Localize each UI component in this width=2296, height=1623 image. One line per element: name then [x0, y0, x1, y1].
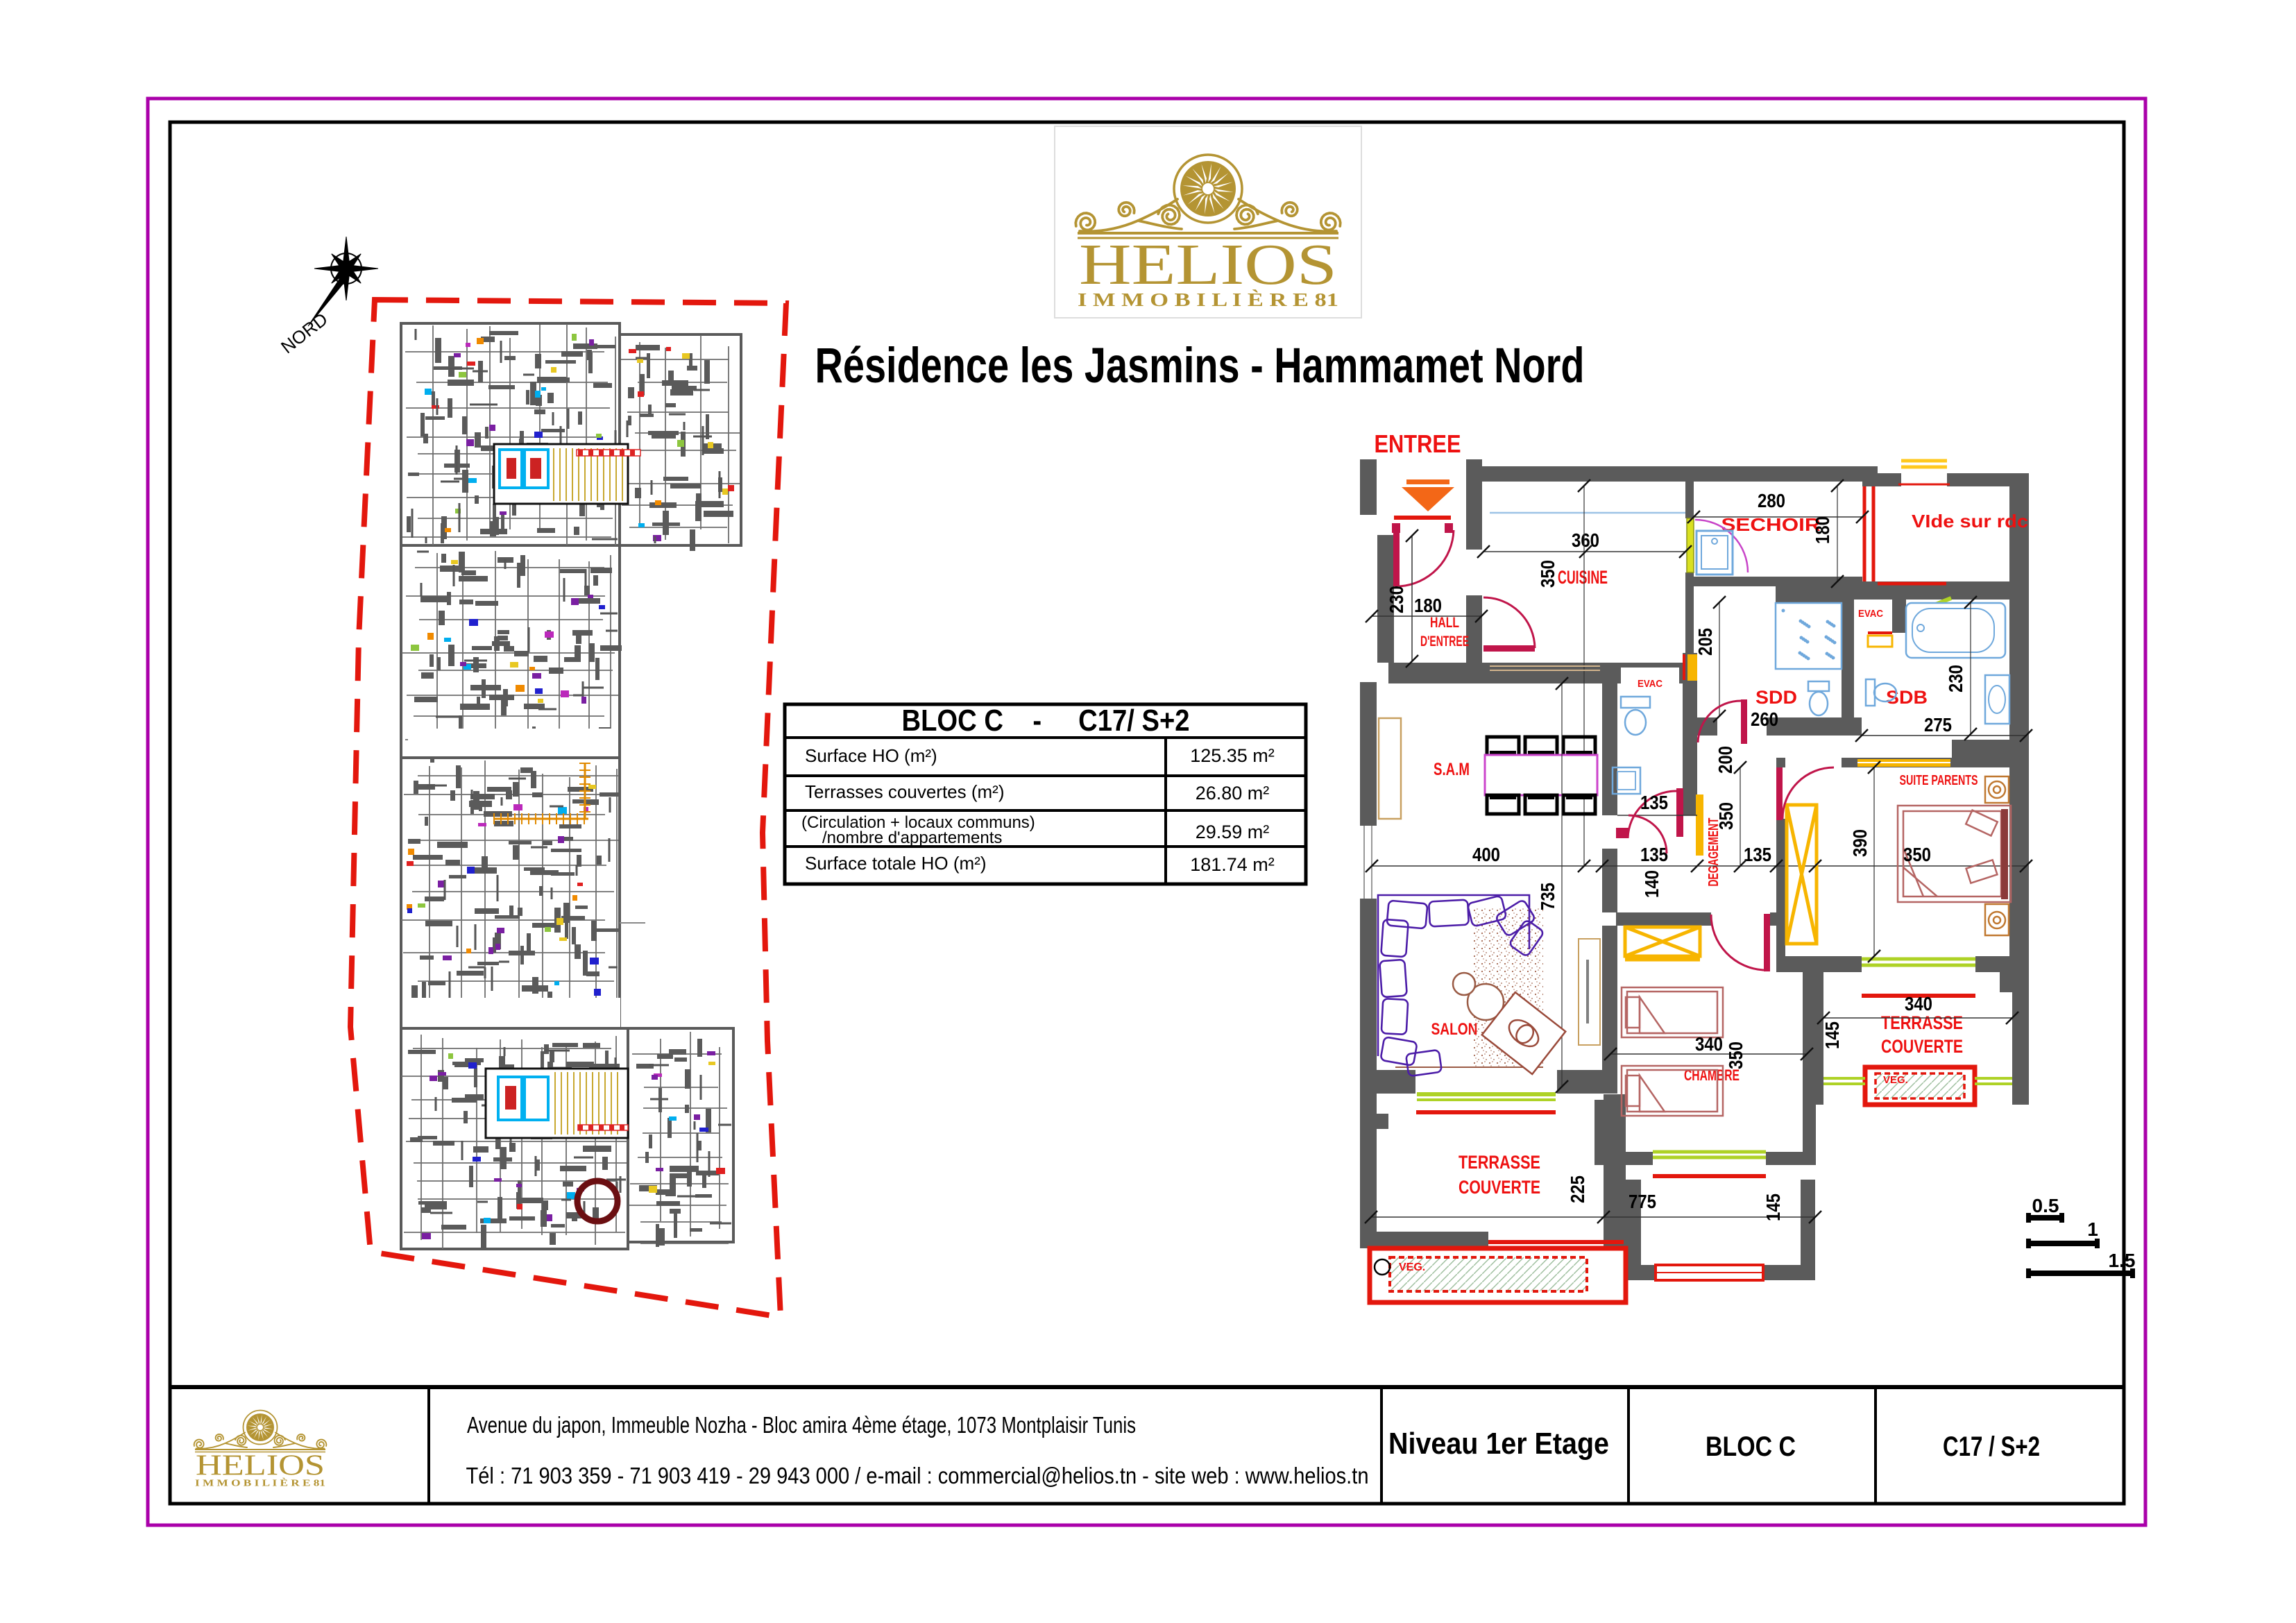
svg-text:BLOC C: BLOC C — [1706, 1431, 1796, 1462]
svg-text:775: 775 — [1629, 1191, 1656, 1212]
svg-text:COUVERTE: COUVERTE — [1459, 1177, 1540, 1198]
svg-text:Avenue du japon, Immeuble Nozh: Avenue du japon, Immeuble Nozha - Bloc a… — [467, 1412, 1136, 1438]
svg-text:COUVERTE: COUVERTE — [1881, 1036, 1963, 1057]
svg-text:BLOC C - C17/ S+2: BLOC C - C17/ S+2 — [902, 704, 1190, 738]
svg-text:VEG.: VEG. — [1399, 1261, 1425, 1273]
svg-text:ENTREE: ENTREE — [1375, 430, 1461, 458]
svg-text:280: 280 — [1758, 490, 1785, 511]
svg-text:EVAC: EVAC — [1638, 678, 1663, 690]
svg-text:HALL: HALL — [1430, 615, 1459, 631]
svg-text:Surface totale HO (m²): Surface totale HO (m²) — [805, 853, 987, 874]
svg-text:260: 260 — [1751, 708, 1778, 730]
svg-text:Surface HO (m²): Surface HO (m²) — [805, 745, 937, 766]
svg-text:Niveau 1er Etage: Niveau 1er Etage — [1388, 1427, 1609, 1461]
svg-text:360: 360 — [1572, 529, 1599, 551]
svg-text:350: 350 — [1537, 560, 1558, 588]
svg-text:S.A.M: S.A.M — [1434, 760, 1470, 779]
svg-text:140: 140 — [1641, 870, 1663, 898]
svg-text:135: 135 — [1640, 844, 1668, 865]
svg-text:EVAC: EVAC — [1858, 608, 1883, 620]
svg-text:180: 180 — [1812, 516, 1833, 544]
svg-text:340: 340 — [1695, 1033, 1723, 1055]
svg-text:VEG.: VEG. — [1883, 1074, 1908, 1086]
svg-text:125.35 m²: 125.35 m² — [1190, 745, 1275, 766]
svg-text:180: 180 — [1414, 595, 1442, 616]
svg-text:Résidence les Jasmins - Hamm: Résidence les Jasmins - Hammamet Nord — [815, 339, 1585, 393]
svg-text:Tél : 71 903 359 - 71 903 419: Tél : 71 903 359 - 71 903 419 - 29 943 0… — [466, 1463, 1369, 1488]
svg-text:350: 350 — [1903, 844, 1931, 865]
svg-text:SUITE PARENTS: SUITE PARENTS — [1900, 773, 1978, 788]
svg-text:340: 340 — [1905, 993, 1932, 1014]
svg-text:1.5: 1.5 — [2109, 1250, 2136, 1271]
svg-text:230: 230 — [1386, 586, 1407, 613]
svg-text:CUISINE: CUISINE — [1558, 567, 1608, 588]
svg-text:0.5: 0.5 — [2032, 1195, 2059, 1216]
svg-text:Terrasses couvertes (m²): Terrasses couvertes (m²) — [805, 781, 1005, 802]
svg-text:C17 / S+2: C17 / S+2 — [1943, 1431, 2040, 1462]
svg-text:/nombre d'appartements: /nombre d'appartements — [822, 829, 1002, 847]
svg-text:200: 200 — [1715, 746, 1736, 774]
svg-text:390: 390 — [1849, 829, 1871, 857]
svg-text:135: 135 — [1744, 844, 1771, 865]
svg-text:29.59 m²: 29.59 m² — [1196, 822, 1270, 842]
svg-text:SALON: SALON — [1431, 1020, 1478, 1039]
svg-text:D'ENTREE: D'ENTREE — [1420, 634, 1469, 649]
svg-text:SDD: SDD — [1755, 687, 1797, 708]
svg-text:350: 350 — [1715, 802, 1737, 830]
svg-text:400: 400 — [1472, 844, 1500, 865]
svg-text:225: 225 — [1567, 1175, 1588, 1203]
svg-text:1: 1 — [2087, 1218, 2098, 1240]
svg-text:TERRASSE: TERRASSE — [1459, 1152, 1540, 1173]
svg-text:TERRASSE: TERRASSE — [1881, 1012, 1963, 1033]
svg-text:VIde sur rdc: VIde sur rdc — [1912, 511, 2028, 532]
svg-text:26.80 m²: 26.80 m² — [1196, 783, 1270, 804]
svg-text:735: 735 — [1537, 883, 1558, 910]
svg-text:230: 230 — [1945, 665, 1966, 692]
svg-text:SDB: SDB — [1886, 687, 1928, 708]
svg-text:181.74 m²: 181.74 m² — [1190, 854, 1275, 875]
svg-text:145: 145 — [1762, 1193, 1784, 1221]
svg-text:275: 275 — [1924, 714, 1952, 736]
svg-text:145: 145 — [1821, 1021, 1843, 1049]
svg-text:205: 205 — [1694, 628, 1716, 656]
svg-text:135: 135 — [1640, 792, 1668, 813]
svg-text:350: 350 — [1725, 1042, 1746, 1069]
